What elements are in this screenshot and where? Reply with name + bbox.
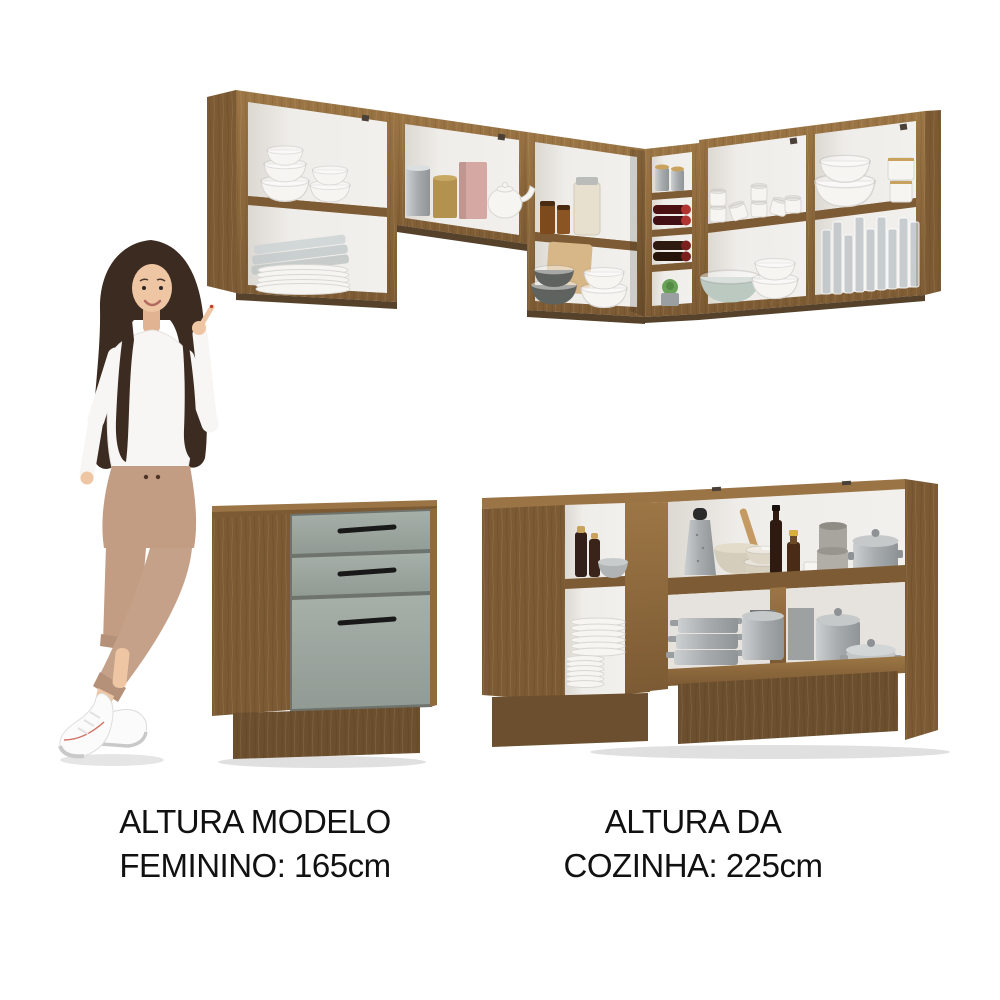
corner-counter-unit (482, 479, 950, 759)
sneaker-front (60, 694, 113, 757)
caption-kitchen-height-line2: COZINHA: 225cm (528, 844, 858, 888)
model-woman (60, 240, 213, 766)
trousers (102, 466, 196, 548)
plate-stack (256, 265, 350, 295)
drawer-3 (292, 595, 430, 709)
caption-kitchen-height-line1: ALTURA DA (528, 800, 858, 844)
caption-kitchen-height: ALTURA DA COZINHA: 225cm (528, 800, 858, 888)
drinking-glasses (822, 217, 919, 294)
three-drawer-base-cabinet (212, 500, 437, 768)
drawer-1 (292, 511, 430, 554)
caption-model-height-line2: FEMININO: 165cm (90, 844, 420, 888)
caption-model-height: ALTURA MODELO FEMININO: 165cm (90, 800, 420, 888)
serving-bowls-and-jars (815, 155, 914, 206)
pocket-hand (81, 472, 94, 485)
caption-model-height-line1: ALTURA MODELO (90, 800, 420, 844)
